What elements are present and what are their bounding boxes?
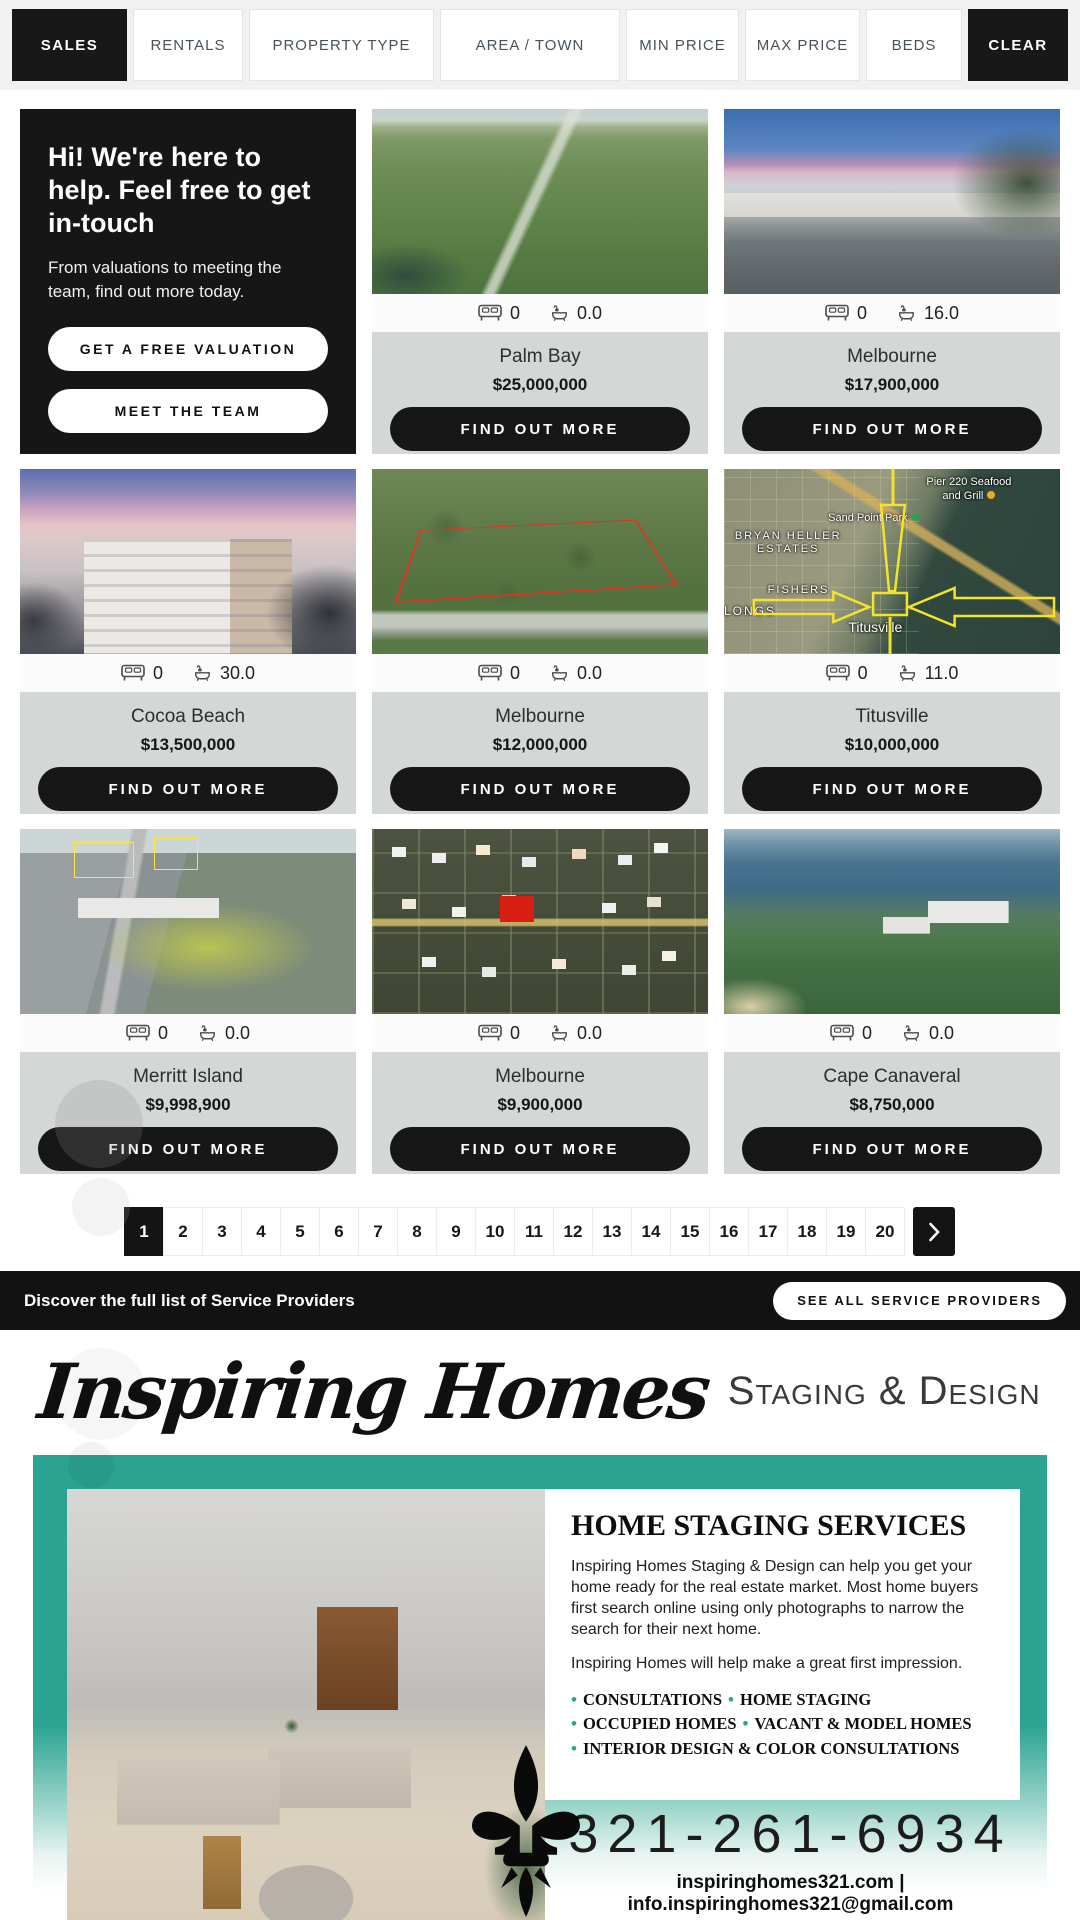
page-button-5[interactable]: 5 — [280, 1207, 320, 1256]
listing-price: $12,000,000 — [372, 735, 708, 755]
listing-photo-cocoa-beach[interactable] — [20, 469, 356, 654]
beds-stat: 0 — [478, 663, 520, 684]
listing-card-palm-bay: 0 0.0 Palm Bay $25,000,000 FIND OUT MORE — [372, 109, 708, 454]
listing-card-melbourne-2: 0 0.0 Melbourne $12,000,000 FIND OUT MOR… — [372, 469, 708, 814]
listing-price: $8,750,000 — [724, 1095, 1060, 1115]
baths-stat: 30.0 — [193, 663, 255, 684]
bed-icon — [830, 1024, 854, 1042]
baths-stat: 0.0 — [550, 1023, 602, 1044]
listing-info: Merritt Island $9,998,900 FIND OUT MORE — [20, 1052, 356, 1174]
bath-icon — [550, 1024, 569, 1042]
bed-icon — [126, 1024, 150, 1042]
filter-min-price[interactable]: MIN PRICE — [626, 9, 739, 81]
beds-stat: 0 — [126, 1023, 168, 1044]
baths-value: 30.0 — [220, 663, 255, 684]
find-out-more-button[interactable]: FIND OUT MORE — [390, 1127, 690, 1171]
page-button-18[interactable]: 18 — [787, 1207, 827, 1256]
page-button-3[interactable]: 3 — [202, 1207, 242, 1256]
page-button-2[interactable]: 2 — [163, 1207, 203, 1256]
listing-stats: 0 0.0 — [372, 294, 708, 332]
find-out-more-button[interactable]: FIND OUT MORE — [38, 1127, 338, 1171]
listing-info: Palm Bay $25,000,000 FIND OUT MORE — [372, 332, 708, 454]
listing-stats: 0 30.0 — [20, 654, 356, 692]
page-button-13[interactable]: 13 — [592, 1207, 632, 1256]
listings-grid: Hi! We're here to help. Feel free to get… — [0, 90, 1080, 1174]
beds-stat: 0 — [830, 1023, 872, 1044]
service-bar-text: Discover the full list of Service Provid… — [24, 1291, 355, 1311]
page-button-12[interactable]: 12 — [553, 1207, 593, 1256]
listing-town: Merritt Island — [20, 1066, 356, 1088]
page-button-11[interactable]: 11 — [514, 1207, 554, 1256]
bath-icon — [898, 664, 917, 682]
page-button-17[interactable]: 17 — [748, 1207, 788, 1256]
page-button-19[interactable]: 19 — [826, 1207, 866, 1256]
listing-price: $17,900,000 — [724, 375, 1060, 395]
listing-price: $9,998,900 — [20, 1095, 356, 1115]
listing-price: $13,500,000 — [20, 735, 356, 755]
page-button-9[interactable]: 9 — [436, 1207, 476, 1256]
bullet-dot: • — [571, 1714, 577, 1733]
beds-stat: 0 — [826, 663, 868, 684]
page-button-20[interactable]: 20 — [865, 1207, 905, 1256]
listing-photo-melbourne-office[interactable] — [724, 109, 1060, 294]
listing-photo-cape-canaveral[interactable] — [724, 829, 1060, 1014]
baths-value: 0.0 — [577, 303, 602, 324]
map-annotation-arrows — [724, 469, 1060, 654]
baths-stat: 0.0 — [550, 303, 602, 324]
page-button-14[interactable]: 14 — [631, 1207, 671, 1256]
listing-stats: 0 0.0 — [724, 1014, 1060, 1052]
baths-value: 16.0 — [924, 303, 959, 324]
bullet-line-3: •INTERIOR DESIGN & COLOR CONSULTATIONS — [571, 1737, 996, 1762]
contact-promo-card: Hi! We're here to help. Feel free to get… — [20, 109, 356, 454]
beds-value: 0 — [510, 663, 520, 684]
listing-info: Cape Canaveral $8,750,000 FIND OUT MORE — [724, 1052, 1060, 1174]
baths-stat: 11.0 — [898, 663, 959, 684]
baths-value: 0.0 — [929, 1023, 954, 1044]
brand-header: Inspiring Homes Staging & Design — [0, 1330, 1080, 1453]
find-out-more-button[interactable]: FIND OUT MORE — [38, 767, 338, 811]
find-out-more-button[interactable]: FIND OUT MORE — [390, 407, 690, 451]
chevron-right-icon — [928, 1222, 940, 1242]
bullet-text: CONSULTATIONS — [583, 1690, 722, 1709]
promo-title: Hi! We're here to help. Feel free to get… — [48, 141, 328, 240]
find-out-more-button[interactable]: FIND OUT MORE — [390, 767, 690, 811]
listing-stats: 0 11.0 — [724, 654, 1060, 692]
bath-icon — [550, 664, 569, 682]
see-all-service-providers-button[interactable]: SEE ALL SERVICE PROVIDERS — [773, 1282, 1066, 1320]
staging-paragraph-1: Inspiring Homes Staging & Design can hel… — [571, 1556, 996, 1640]
page-button-16[interactable]: 16 — [709, 1207, 749, 1256]
page-button-8[interactable]: 8 — [397, 1207, 437, 1256]
baths-value: 0.0 — [577, 1023, 602, 1044]
baths-stat: 0.0 — [902, 1023, 954, 1044]
beds-value: 0 — [158, 1023, 168, 1044]
beds-value: 0 — [858, 663, 868, 684]
baths-stat: 16.0 — [897, 303, 959, 324]
bullet-dot: • — [728, 1690, 734, 1709]
staging-bullet-list: •CONSULTATIONS•HOME STAGING •OCCUPIED HO… — [571, 1688, 996, 1762]
baths-value: 11.0 — [925, 663, 959, 684]
filter-area-town[interactable]: AREA / TOWN — [440, 9, 620, 81]
find-out-more-button[interactable]: FIND OUT MORE — [742, 1127, 1042, 1171]
bath-icon — [897, 304, 916, 322]
filter-clear-button[interactable]: CLEAR — [968, 9, 1068, 81]
page-button-1[interactable]: 1 — [124, 1207, 164, 1256]
listing-town: Melbourne — [372, 706, 708, 728]
baths-value: 0.0 — [577, 663, 602, 684]
find-out-more-button[interactable]: FIND OUT MORE — [742, 767, 1042, 811]
listing-town: Palm Bay — [372, 346, 708, 368]
listing-price: $10,000,000 — [724, 735, 1060, 755]
bullet-text: VACANT & MODEL HOMES — [754, 1714, 971, 1733]
bath-icon — [902, 1024, 921, 1042]
bullet-text: INTERIOR DESIGN & COLOR CONSULTATIONS — [583, 1739, 960, 1758]
promo-body: From valuations to meeting the team, fin… — [48, 256, 328, 305]
listing-photo-melbourne-plaza-map[interactable] — [372, 829, 708, 1014]
page-button-10[interactable]: 10 — [475, 1207, 515, 1256]
listing-photo-titusville-map[interactable]: Pier 220 Seafood and Grill Sand Point Pa… — [724, 469, 1060, 654]
listing-info: Cocoa Beach $13,500,000 FIND OUT MORE — [20, 692, 356, 814]
beds-value: 0 — [510, 1023, 520, 1044]
bullet-dot: • — [743, 1714, 749, 1733]
get-valuation-button[interactable]: GET A FREE VALUATION — [48, 327, 328, 371]
filter-sales[interactable]: SALES — [12, 9, 127, 81]
baths-stat: 0.0 — [550, 663, 602, 684]
brand-script-logo: Inspiring Homes — [35, 1347, 713, 1436]
bath-icon — [198, 1024, 217, 1042]
find-out-more-button[interactable]: FIND OUT MORE — [742, 407, 1042, 451]
bed-icon — [121, 664, 145, 682]
listing-info: Melbourne $9,900,000 FIND OUT MORE — [372, 1052, 708, 1174]
listing-stats: 0 0.0 — [372, 654, 708, 692]
beds-stat: 0 — [825, 303, 867, 324]
staging-ad-flyer: HOME STAGING SERVICES Inspiring Homes St… — [33, 1455, 1047, 1920]
staging-services-panel: HOME STAGING SERVICES Inspiring Homes St… — [545, 1489, 1020, 1800]
beds-stat: 0 — [478, 303, 520, 324]
beds-value: 0 — [862, 1023, 872, 1044]
listing-stats: 0 0.0 — [20, 1014, 356, 1052]
beds-value: 0 — [153, 663, 163, 684]
pagination: 1234567891011121314151617181920 — [0, 1207, 1080, 1256]
baths-stat: 0.0 — [198, 1023, 250, 1044]
bullet-line-1: •CONSULTATIONS•HOME STAGING — [571, 1688, 996, 1713]
listing-photo-melbourne-parcel[interactable] — [372, 469, 708, 654]
page-button-6[interactable]: 6 — [319, 1207, 359, 1256]
listing-price: $25,000,000 — [372, 375, 708, 395]
page-button-4[interactable]: 4 — [241, 1207, 281, 1256]
next-page-button[interactable] — [913, 1207, 955, 1256]
bed-icon — [478, 1024, 502, 1042]
listing-photo-palm-bay[interactable] — [372, 109, 708, 294]
listing-card-cocoa-beach: 0 30.0 Cocoa Beach $13,500,000 FIND OUT … — [20, 469, 356, 814]
bath-icon — [550, 304, 569, 322]
listing-town: Melbourne — [724, 346, 1060, 368]
service-provider-bar: Discover the full list of Service Provid… — [0, 1271, 1080, 1330]
listing-card-melbourne-1: 0 16.0 Melbourne $17,900,000 FIND OUT MO… — [724, 109, 1060, 454]
bed-icon — [825, 304, 849, 322]
bed-icon — [478, 664, 502, 682]
listing-card-merritt-island: 0 0.0 Merritt Island $9,998,900 FIND OUT… — [20, 829, 356, 1174]
listing-town: Cape Canaveral — [724, 1066, 1060, 1088]
beds-stat: 0 — [121, 663, 163, 684]
listing-card-cape-canaveral: 0 0.0 Cape Canaveral $8,750,000 FIND OUT… — [724, 829, 1060, 1174]
listing-card-titusville: Pier 220 Seafood and Grill Sand Point Pa… — [724, 469, 1060, 814]
brand-suffix: Staging & Design — [728, 1369, 1041, 1414]
listing-stats: 0 16.0 — [724, 294, 1060, 332]
staging-paragraph-2: Inspiring Homes will help make a great f… — [571, 1653, 996, 1674]
page-button-7[interactable]: 7 — [358, 1207, 398, 1256]
beds-value: 0 — [510, 303, 520, 324]
listing-card-melbourne-3: 0 0.0 Melbourne $9,900,000 FIND OUT MORE — [372, 829, 708, 1174]
listing-info: Titusville $10,000,000 FIND OUT MORE — [724, 692, 1060, 814]
bed-icon — [478, 304, 502, 322]
filter-property-type[interactable]: PROPERTY TYPE — [249, 9, 434, 81]
listing-price: $9,900,000 — [372, 1095, 708, 1115]
bullet-text: HOME STAGING — [740, 1690, 871, 1709]
bullet-dot: • — [571, 1690, 577, 1709]
beds-stat: 0 — [478, 1023, 520, 1044]
filter-bar: SALES RENTALS PROPERTY TYPE AREA / TOWN … — [0, 0, 1080, 90]
staging-phone-number: 321-261-6934 — [538, 1803, 1043, 1865]
bullet-line-2: •OCCUPIED HOMES•VACANT & MODEL HOMES — [571, 1712, 996, 1737]
bed-icon — [826, 664, 850, 682]
listing-info: Melbourne $12,000,000 FIND OUT MORE — [372, 692, 708, 814]
listing-photo-merritt-island[interactable] — [20, 829, 356, 1014]
staging-contact-line: inspiringhomes321.com | info.inspiringho… — [538, 1872, 1043, 1916]
fleur-de-lis-icon — [451, 1743, 601, 1919]
listing-town: Cocoa Beach — [20, 706, 356, 728]
listing-town: Titusville — [724, 706, 1060, 728]
bullet-text: OCCUPIED HOMES — [583, 1714, 737, 1733]
meet-team-button[interactable]: MEET THE TEAM — [48, 389, 328, 433]
filter-rentals[interactable]: RENTALS — [133, 9, 243, 81]
bath-icon — [193, 664, 212, 682]
beds-value: 0 — [857, 303, 867, 324]
baths-value: 0.0 — [225, 1023, 250, 1044]
staging-heading: HOME STAGING SERVICES — [571, 1509, 996, 1543]
page-button-15[interactable]: 15 — [670, 1207, 710, 1256]
listing-town: Melbourne — [372, 1066, 708, 1088]
filter-beds[interactable]: BEDS — [866, 9, 962, 81]
filter-max-price[interactable]: MAX PRICE — [745, 9, 860, 81]
listing-info: Melbourne $17,900,000 FIND OUT MORE — [724, 332, 1060, 454]
listing-stats: 0 0.0 — [372, 1014, 708, 1052]
